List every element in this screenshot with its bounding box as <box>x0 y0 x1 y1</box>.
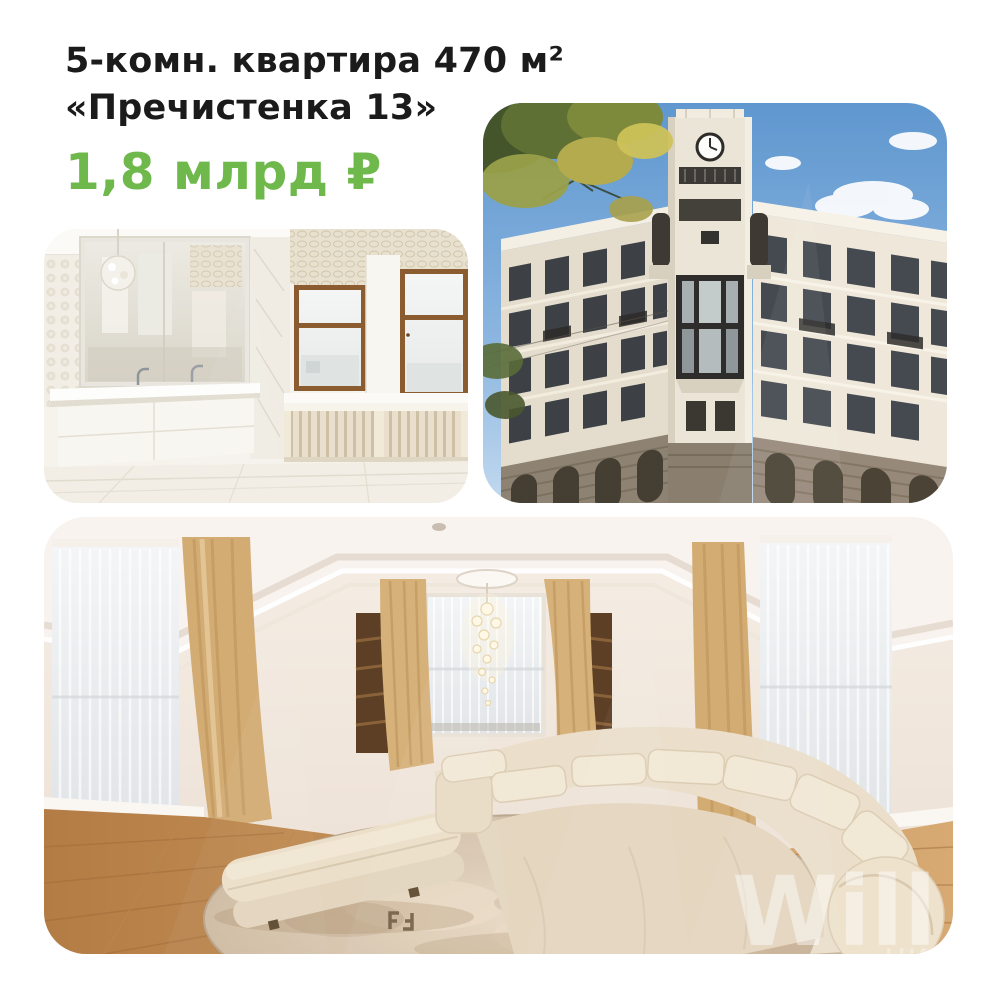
bay-window <box>676 275 744 379</box>
window <box>294 285 366 391</box>
pillar <box>366 255 400 407</box>
listing-title-line1: 5-комн. квартира 470 м² <box>65 38 564 85</box>
window-sill <box>284 393 468 403</box>
textured-wall-tile <box>44 255 80 407</box>
building-scene <box>483 103 947 503</box>
left-window <box>52 539 179 809</box>
listing-card: 5-комн. квартира 470 м² «Пречистенка 13»… <box>0 0 1000 995</box>
building-photo <box>483 103 947 503</box>
living-room-photo: Will циал <box>44 517 953 954</box>
bathroom-photo <box>44 229 468 503</box>
window <box>400 269 468 397</box>
radiator-cover <box>284 403 468 462</box>
living-room-scene: Will циал <box>44 517 953 954</box>
watermark-text-secondary: циал <box>884 936 953 954</box>
left-facade <box>501 207 668 503</box>
bathroom-scene <box>44 229 468 503</box>
